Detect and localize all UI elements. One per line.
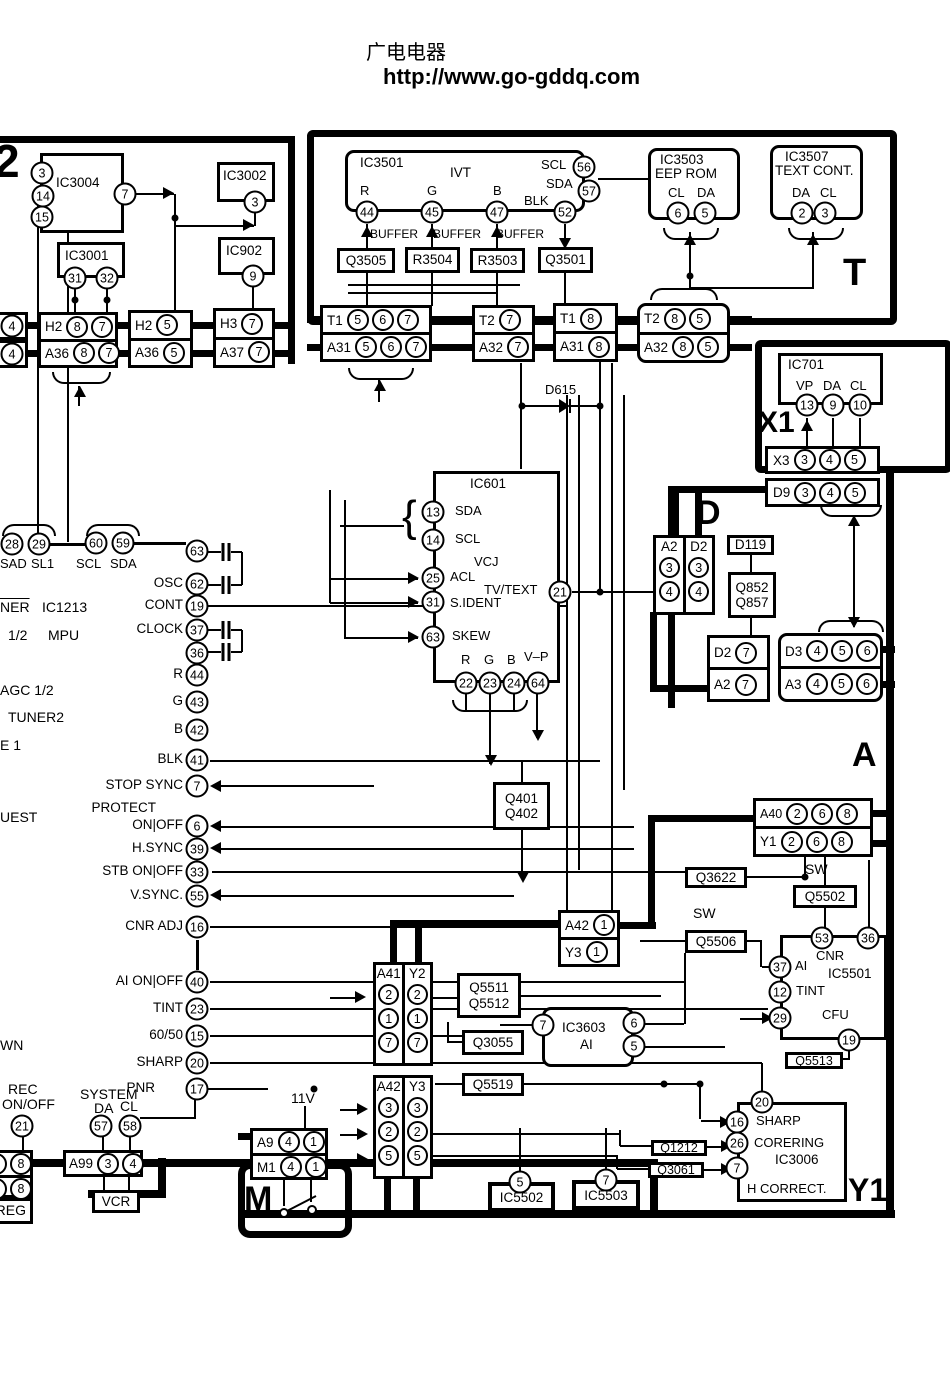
col-label: Y2	[409, 966, 426, 981]
ic3603-pin6: 6	[623, 1012, 646, 1035]
rec-onoff-label: ON/OFF	[2, 1097, 55, 1112]
junction-dot	[172, 215, 179, 222]
row-label: A31	[560, 339, 584, 354]
wire	[599, 407, 601, 592]
col-label: A42	[377, 1079, 401, 1094]
ic3004-pin7: 7	[114, 183, 137, 206]
ic3507-pin3: 3	[814, 202, 837, 225]
bus	[648, 815, 655, 927]
wire	[340, 525, 404, 527]
ic3004-pin3: 3	[31, 162, 54, 185]
col-pin: 3	[407, 1097, 428, 1118]
row-pin: 8	[836, 803, 858, 825]
ic3004-title: IC3004	[56, 175, 100, 190]
mpu-pin59: 59	[112, 532, 135, 555]
arrow	[374, 380, 386, 391]
buffer-label: BUFFER	[433, 228, 481, 241]
row-pin: 4	[0, 1178, 7, 1200]
row-pin: 7	[98, 342, 120, 364]
connector-row: A3285	[640, 332, 727, 361]
wire	[524, 1083, 700, 1085]
ic5501-pin53: 53	[811, 927, 834, 950]
ic3002-pin3: 3	[244, 191, 267, 214]
ic601-r-label: R	[461, 653, 470, 667]
sda-label: SDA	[110, 557, 137, 571]
junction-dot	[72, 297, 79, 304]
section-label-x1: X1	[758, 406, 795, 440]
ic3006-pin16: 16	[726, 1111, 749, 1134]
mpu-pin7: 7	[186, 775, 209, 798]
wire	[128, 1177, 130, 1190]
row-label: A99	[69, 1156, 93, 1171]
row-pin: 8	[831, 831, 853, 853]
wire	[684, 953, 686, 1024]
row-label: A3	[785, 677, 802, 692]
col-label: Y3	[409, 1079, 426, 1094]
row-pin: 5	[163, 342, 185, 364]
q852-q857-part: Q852Q857	[728, 572, 776, 618]
sharp-label: SHARP	[83, 1054, 183, 1069]
arrow	[210, 820, 221, 832]
arrow	[408, 572, 419, 584]
row-label: T2	[644, 311, 660, 326]
r3503-part: R3503	[470, 248, 525, 273]
row-label: A9	[257, 1135, 274, 1150]
ic5501-cfu-label: CFU	[822, 1008, 849, 1022]
section-label-y1: Y1	[848, 1172, 887, 1209]
ic3507-title: IC3507	[785, 149, 829, 164]
ic3507-cl-label: CL	[820, 186, 837, 200]
wire	[566, 395, 568, 910]
wire	[640, 940, 685, 942]
system-cl-label: CL	[120, 1099, 138, 1114]
bus	[158, 1158, 166, 1198]
ic5501-pin12: 12	[769, 981, 792, 1004]
row-pin: 2	[786, 803, 808, 825]
row-label: T1	[560, 311, 576, 326]
60-50-label: 60/50	[83, 1027, 183, 1042]
reg-part: REG	[0, 1198, 33, 1224]
connector-row: A27	[710, 667, 767, 699]
col-pin: 5	[378, 1145, 399, 1166]
arrow	[243, 219, 254, 231]
mpu-pin33: 33	[186, 861, 209, 884]
connector-row: A327	[475, 332, 532, 359]
q5511-label: Q5511	[469, 980, 509, 995]
row-label: H3	[220, 316, 237, 331]
capacitor-icon	[206, 540, 250, 600]
row-pin: 7	[735, 674, 757, 696]
q3061-part: Q3061	[648, 1162, 704, 1178]
ic3501-pin44: 44	[356, 201, 379, 224]
mpu-pin17: 17	[186, 1078, 209, 1101]
row-pin: 4	[0, 1153, 7, 1175]
wire	[747, 876, 805, 878]
junction-dot	[104, 297, 111, 304]
connector-row: T18	[556, 306, 615, 331]
row-pin: 8	[10, 1153, 32, 1175]
stop-sync-label: STOP SYNC	[83, 777, 183, 792]
d119-part: D119	[727, 535, 774, 555]
arrow	[74, 386, 86, 397]
clock-label: CLOCK	[83, 621, 183, 636]
connector-row: A318	[556, 331, 615, 359]
row-label: A42	[565, 918, 589, 933]
ic3503-function: EEP ROM	[655, 166, 717, 181]
section-label-a: A	[852, 736, 877, 775]
row-label: X3	[773, 453, 790, 468]
row-pin: 3	[97, 1153, 119, 1175]
junction-dot	[597, 403, 604, 410]
ic3507-function: TEXT CONT.	[775, 163, 854, 178]
mpu-label: MPU	[48, 628, 79, 643]
row-label: T2	[479, 313, 495, 328]
row-pin: 6	[856, 640, 878, 662]
mpu-pin39: 39	[186, 838, 209, 861]
wire	[214, 848, 634, 850]
ic5503-pin7: 7	[595, 1169, 618, 1192]
connector-row: H287	[41, 315, 115, 339]
ic3006-pin7: 7	[726, 1157, 749, 1180]
bus	[191, 322, 215, 329]
col-label: D2	[690, 539, 707, 554]
ic701-title: IC701	[788, 357, 824, 372]
connector-row: A40268	[756, 801, 870, 826]
col-pin: 7	[407, 1032, 428, 1053]
v-sync-label: V.SYNC.	[83, 887, 183, 902]
mpu-pin23: 23	[186, 998, 209, 1021]
wire	[500, 1024, 532, 1026]
connector-row: Y31	[561, 937, 617, 964]
ic601-acl-label: ACL	[450, 570, 475, 584]
row-pin: 4	[806, 673, 828, 695]
row-label: M1	[257, 1160, 276, 1175]
mpu-pin16: 16	[186, 916, 209, 939]
q3622-part: Q3622	[685, 867, 747, 888]
connector-d9: D9345	[765, 478, 880, 507]
row-label: T1	[327, 313, 343, 328]
arrow	[357, 1128, 368, 1140]
connector-d3-a3: D3456 A3456	[778, 633, 883, 702]
arrow	[517, 872, 529, 883]
buffer-label: BUFFER	[370, 228, 418, 241]
wire	[134, 542, 186, 545]
row-label: D3	[785, 644, 802, 659]
b-label: B	[83, 721, 183, 736]
wire	[617, 1168, 648, 1170]
onoff-label: ON|OFF	[83, 817, 183, 832]
mpu-pin63: 63	[186, 540, 209, 563]
tuner-fragment: NER	[0, 600, 30, 615]
section-border	[288, 136, 295, 364]
arrow	[485, 755, 497, 766]
q5513-part: Q5513	[785, 1052, 843, 1069]
wire	[103, 1177, 105, 1190]
mpu-pin20: 20	[186, 1052, 209, 1075]
row-label: D9	[773, 485, 790, 500]
wire	[252, 286, 254, 308]
bus	[273, 322, 290, 329]
row-pin: 4	[819, 482, 841, 504]
ic701-pin10: 10	[849, 394, 872, 417]
ic3006-pin26: 26	[726, 1132, 749, 1155]
ic5501-tint-label: TINT	[796, 984, 825, 998]
wire	[578, 395, 580, 870]
brace	[818, 620, 884, 632]
bus	[32, 1159, 63, 1167]
bus	[655, 685, 707, 692]
mpu-pin37: 37	[186, 619, 209, 642]
wire	[432, 997, 457, 999]
tuner2-label: TUNER2	[8, 710, 64, 725]
arrow	[210, 842, 221, 854]
row-pin: 1	[303, 1131, 325, 1153]
mpu-pin19: 19	[186, 595, 209, 618]
col-pin: 3	[659, 557, 680, 578]
bus	[728, 344, 752, 351]
col-pin: 3	[688, 557, 709, 578]
connector-row: A421	[561, 913, 617, 937]
ic3507-da-label: DA	[792, 186, 810, 200]
connector-col: Y3325	[402, 1078, 431, 1176]
bus	[648, 815, 753, 822]
junction-dot	[697, 1081, 704, 1088]
wire	[140, 1117, 196, 1119]
q857-label: Q857	[735, 595, 768, 610]
ic3501-pin45: 45	[421, 201, 444, 224]
wire	[212, 871, 717, 873]
ic601-g-label: G	[484, 653, 494, 667]
ic902-title: IC902	[226, 243, 262, 258]
col-pin: 1	[378, 1008, 399, 1029]
mpu-pin44: 44	[186, 664, 209, 687]
row-pin: 6	[811, 803, 833, 825]
ic601-b-label: B	[507, 653, 516, 667]
section-label-t: T	[843, 252, 866, 295]
row-pin: 7	[241, 313, 263, 335]
mpu-pin60: 60	[85, 532, 108, 555]
connector-h3-a37: H37 A377	[213, 308, 275, 368]
schematic-page: 广电电器 http://www.go-gddq.com	[0, 0, 950, 1384]
mpu-pin55: 55	[186, 885, 209, 908]
mpu-pin6: 6	[186, 815, 209, 838]
ic3501-function: IVT	[450, 165, 471, 180]
wire	[420, 1155, 616, 1157]
row-pin: 5	[689, 308, 711, 330]
ic3004-pin15: 15	[31, 206, 54, 229]
ic601-scl-label: SCL	[455, 532, 480, 546]
row-pin: 1	[586, 941, 608, 963]
ic701-pin13: 13	[796, 394, 819, 417]
wire	[344, 500, 346, 639]
ic3501-pin47: 47	[486, 201, 509, 224]
wire	[214, 826, 634, 828]
arrow	[357, 1103, 368, 1115]
ic5501-ai-label: AI	[795, 959, 807, 973]
col-label: A41	[377, 966, 401, 981]
wire	[843, 1058, 850, 1060]
q5502-part: Q5502	[793, 885, 857, 908]
ic3501-title: IC3501	[360, 155, 404, 170]
ic601-pin23: 23	[479, 672, 502, 695]
connector-a41-y2: A41217 Y2217	[373, 962, 433, 1066]
ic601-pin22: 22	[455, 672, 478, 695]
wire	[210, 981, 685, 983]
mpu-pin43: 43	[186, 691, 209, 714]
ai-onoff-label: AI ON|OFF	[83, 973, 183, 988]
row-pin: 7	[91, 316, 113, 338]
vcr-part: VCR	[92, 1190, 140, 1213]
connector-row: T1567	[323, 308, 429, 332]
row-pin: 6	[372, 309, 394, 331]
ic5501-cnr-label: CNR	[816, 949, 844, 963]
row-label: A37	[220, 345, 244, 360]
row-pin: 7	[397, 309, 419, 331]
row-pin: 4	[122, 1153, 144, 1175]
brace	[452, 700, 528, 712]
connector-d2-a2: D27 A27	[707, 635, 770, 702]
bus	[390, 920, 397, 964]
wire	[214, 895, 514, 897]
connector-row: T27	[475, 308, 532, 332]
ic3006-sharp-label: SHARP	[756, 1114, 801, 1128]
ic3001-pin32: 32	[96, 267, 119, 290]
bus	[415, 920, 422, 964]
system-pin57: 57	[90, 1115, 113, 1138]
row-label: D2	[714, 645, 731, 660]
ic5501-pin37: 37	[769, 956, 792, 979]
ic601-vp-label: V–P	[524, 650, 549, 664]
junction-dot	[597, 589, 604, 596]
connector-col: Y2217	[402, 965, 431, 1063]
ic3503-cl-label: CL	[668, 186, 685, 200]
mpu-pin40: 40	[186, 971, 209, 994]
connector-col: A234	[656, 538, 683, 612]
sad-label: SAD	[0, 557, 27, 571]
q5519-part: Q5519	[462, 1073, 524, 1096]
connector-row: 48	[0, 1153, 30, 1175]
ic3006-corering-label: CORERING	[754, 1136, 824, 1150]
row-pin: 6	[856, 673, 878, 695]
mpu-pin42: 42	[186, 719, 209, 742]
row-pin: 5	[844, 449, 866, 471]
buffer-label: BUFFER	[496, 228, 544, 241]
wire	[174, 194, 176, 310]
row-label: A36	[45, 346, 69, 361]
connector-t2-a32: T27 A327	[472, 305, 535, 362]
bus	[616, 344, 639, 351]
wire	[645, 1023, 684, 1025]
bus	[273, 350, 290, 357]
r-label: R	[83, 666, 183, 681]
row-pin: 3	[794, 482, 816, 504]
bus	[883, 646, 895, 653]
wire	[520, 363, 522, 407]
arrow	[163, 187, 174, 199]
q3055-part: Q3055	[462, 1030, 524, 1055]
row-pin: 7	[499, 309, 521, 331]
g-label: G	[83, 693, 183, 708]
ic601-pin13: 13	[422, 501, 445, 524]
wire	[853, 515, 855, 627]
brace	[348, 368, 414, 380]
wire	[196, 940, 199, 970]
q401-label: Q401	[505, 791, 538, 806]
col-pin: 2	[407, 984, 428, 1005]
row-pin: 7	[248, 341, 270, 363]
wire	[214, 785, 374, 787]
ic3006-pin20: 20	[751, 1091, 774, 1114]
mpu-pin62: 62	[186, 573, 209, 596]
scl-label: SCL	[76, 557, 101, 571]
bus	[413, 1179, 420, 1213]
sw-label: SW	[693, 906, 716, 921]
row-pin: 3	[794, 449, 816, 471]
row-label: A2	[714, 677, 731, 692]
row-pin: 5	[831, 673, 853, 695]
wire	[521, 995, 661, 997]
switch-icon	[272, 1192, 328, 1220]
col-pin: 7	[378, 1032, 399, 1053]
connector-x3: X3345	[765, 446, 880, 474]
q5512-label: Q5512	[469, 996, 510, 1011]
row-label: A32	[644, 340, 668, 355]
ic601-sident-label: S.IDENT	[450, 596, 501, 610]
col-pin: 2	[378, 984, 399, 1005]
row-pin: 8	[588, 336, 610, 358]
cont-label: CONT	[83, 597, 183, 612]
connector-a2-d2: A234 D234	[653, 535, 715, 615]
section-border	[0, 136, 295, 143]
ic601-pin21: 21	[549, 581, 572, 604]
mpu-pin29: 29	[28, 533, 51, 556]
connector-a42-y3-2: A42325 Y3325	[373, 1075, 433, 1179]
row-label: A36	[135, 345, 159, 360]
connector-row: H25	[131, 313, 190, 338]
ic601-pin63: 63	[422, 626, 445, 649]
ic601-pin25: 25	[422, 567, 445, 590]
bus	[883, 681, 895, 688]
diode-icon	[553, 397, 583, 415]
connector-h2-a36-2: H25 A365	[128, 310, 193, 368]
row-label: Y1	[760, 834, 777, 849]
arrow	[408, 631, 419, 643]
row-pin: 5	[347, 309, 369, 331]
section-border	[668, 486, 768, 493]
ic3501-g-label: G	[427, 184, 437, 198]
ic3004-pin14: 14	[32, 185, 55, 208]
ic5501-pin29: 29	[769, 1007, 792, 1030]
wire	[761, 1063, 763, 1091]
ic3503-da-label: DA	[697, 186, 715, 200]
line1-fragment: E 1	[0, 738, 21, 753]
q401-q402-part: Q401Q402	[493, 782, 550, 830]
row-pin: 5	[697, 336, 719, 358]
row-pin: 6	[380, 336, 402, 358]
bus	[672, 493, 679, 537]
bus	[533, 344, 555, 351]
cnr-adj-label: CNR ADJ	[83, 918, 183, 933]
row-label: A40	[760, 807, 782, 821]
wire	[521, 830, 523, 878]
wire	[304, 1106, 306, 1128]
ic701-pin9: 9	[822, 394, 845, 417]
connector-a9-m1: A941 M141	[250, 1128, 328, 1180]
connector-col: A41217	[376, 965, 402, 1063]
row-pin: 5	[831, 640, 853, 662]
arrow	[408, 596, 419, 608]
ic3501-sda-label: SDA	[546, 177, 573, 191]
